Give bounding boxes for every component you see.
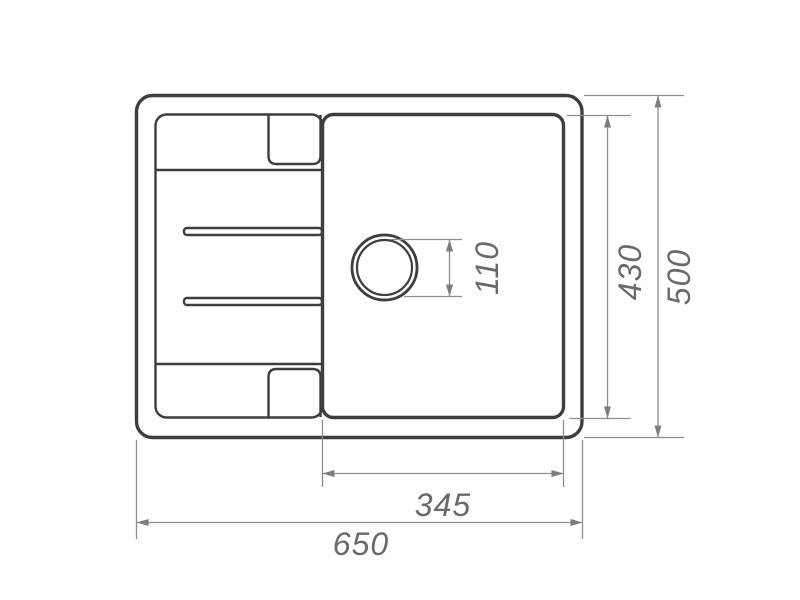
dim-650-arrow-right <box>571 519 583 526</box>
dimension-bowl-width: 345 <box>323 420 564 523</box>
dimension-bowl-depth: 430 <box>567 116 648 419</box>
dim-650-arrow-left <box>137 519 149 526</box>
sink-body <box>137 96 583 438</box>
drain-hole-inner-circle <box>357 240 412 295</box>
drawing-canvas: 110 430 500 345 <box>0 0 800 600</box>
sink-outer-edge <box>137 96 583 438</box>
dim-110-arrow-up <box>446 240 453 252</box>
dim-430-arrow-down <box>604 407 611 419</box>
sink-technical-drawing: 110 430 500 345 <box>0 0 800 600</box>
bowl-outline <box>323 115 564 418</box>
dim-430-arrow-up <box>604 116 611 128</box>
drainboard-outline <box>156 115 323 418</box>
drainboard-rib-bottom <box>184 298 322 305</box>
dim-345-label: 345 <box>415 487 471 523</box>
dim-650-label: 650 <box>333 526 389 562</box>
top-accessory-notch <box>269 115 321 164</box>
dim-500-label: 500 <box>661 249 697 305</box>
bottom-accessory-notch <box>269 369 321 417</box>
dim-345-arrow-left <box>323 470 335 477</box>
dim-110-label: 110 <box>469 241 505 295</box>
drainboard-rib-top <box>184 228 322 235</box>
dimension-drain-diameter: 110 <box>390 240 505 297</box>
dim-500-arrow-up <box>655 96 662 108</box>
dim-500-arrow-down <box>655 426 662 438</box>
dimension-overall-width: 650 <box>137 440 583 562</box>
dim-430-label: 430 <box>612 244 648 300</box>
dim-110-arrow-down <box>446 285 453 297</box>
dim-345-arrow-right <box>552 470 564 477</box>
drain-hole-outer-circle <box>352 235 417 300</box>
